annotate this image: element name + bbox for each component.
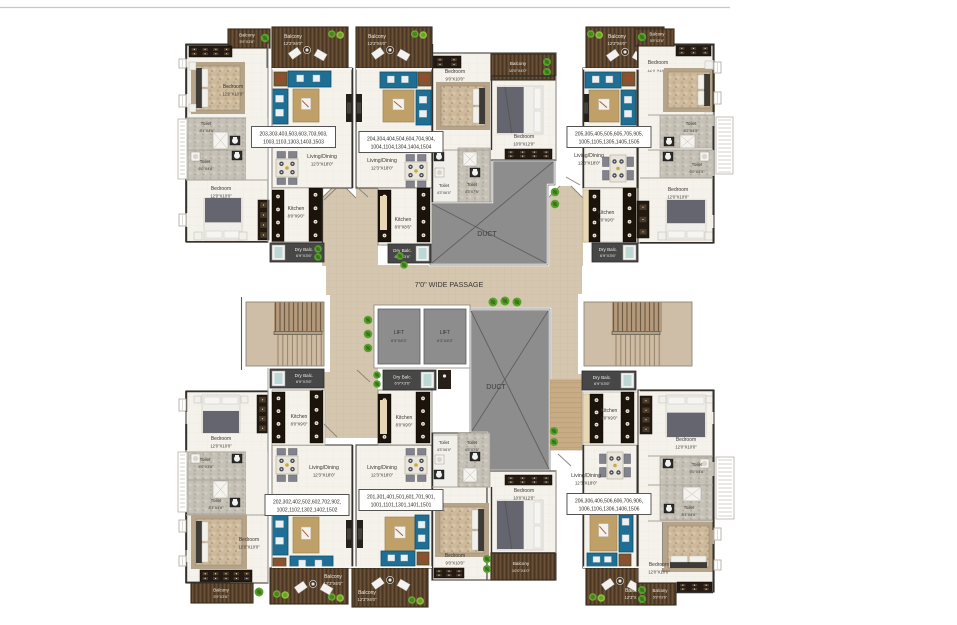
svg-text:Bedroom: Bedroom — [211, 186, 231, 192]
svg-text:Kitchen: Kitchen — [288, 206, 305, 212]
svg-text:Toilet: Toilet — [467, 440, 478, 445]
svg-text:4'3"X7'6": 4'3"X7'6" — [465, 190, 480, 194]
svg-text:10'0"X4'0": 10'0"X4'0" — [512, 568, 531, 573]
svg-text:Bedroom: Bedroom — [514, 134, 534, 140]
svg-text:Bedroom: Bedroom — [676, 437, 696, 443]
svg-text:Bedroom: Bedroom — [514, 488, 534, 494]
svg-text:6'3"X8'3": 6'3"X8'3" — [391, 338, 408, 343]
svg-text:Balcony: Balcony — [213, 588, 229, 593]
svg-text:9'0"X10'0": 9'0"X10'0" — [445, 561, 465, 566]
svg-text:4'3"X6'0": 4'3"X6'0" — [437, 191, 452, 195]
svg-text:Toilet: Toilet — [201, 121, 212, 126]
svg-text:Balcony: Balcony — [324, 574, 342, 580]
svg-text:205,305,405,505,605,705,905,: 205,305,405,505,605,705,905, — [575, 132, 643, 138]
svg-text:6'9"X3'6": 6'9"X3'6" — [296, 379, 313, 384]
svg-text:8'3"X4'6": 8'3"X4'6" — [681, 513, 697, 517]
svg-text:Bedroom: Bedroom — [445, 69, 465, 75]
svg-text:Kitchen: Kitchen — [598, 210, 615, 216]
svg-text:LIFT: LIFT — [440, 330, 450, 336]
svg-text:1004,1104,1304,1404,1504: 1004,1104,1304,1404,1504 — [371, 145, 432, 151]
svg-text:Toilet: Toilet — [200, 457, 211, 462]
svg-text:12'0"X10'0": 12'0"X10'0" — [222, 92, 244, 97]
svg-text:Dry Balc.: Dry Balc. — [393, 248, 412, 253]
svg-text:Toilet: Toilet — [211, 498, 222, 503]
svg-text:Toilet: Toilet — [692, 162, 703, 167]
svg-text:12'0"X10'0": 12'0"X10'0" — [210, 444, 232, 449]
svg-text:1001,1101,1301,1401,1501: 1001,1101,1301,1401,1501 — [371, 503, 432, 509]
svg-text:Bedroom: Bedroom — [668, 187, 688, 193]
svg-text:12'3"X6'0": 12'3"X6'0" — [367, 41, 387, 46]
svg-text:Living/Dining: Living/Dining — [574, 153, 604, 159]
svg-text:DUCT: DUCT — [477, 231, 497, 238]
svg-text:12'3"X18'0": 12'3"X18'0" — [575, 481, 598, 486]
svg-text:Living/Dining: Living/Dining — [309, 465, 339, 471]
svg-text:6'9"X3'6": 6'9"X3'6" — [594, 381, 611, 386]
svg-text:6'0"X4'5": 6'0"X4'5" — [689, 170, 705, 174]
svg-text:Living/Dining: Living/Dining — [367, 158, 397, 164]
svg-text:12'0"X10'0": 12'0"X10'0" — [667, 195, 689, 200]
svg-text:Balcony: Balcony — [358, 590, 376, 596]
svg-text:12'3"X18'0": 12'3"X18'0" — [311, 162, 334, 167]
svg-text:Living/Dining: Living/Dining — [571, 473, 601, 479]
svg-text:Bedroom: Bedroom — [239, 537, 259, 543]
svg-text:1003,1103,1303,1403,1503: 1003,1103,1303,1403,1503 — [263, 140, 324, 146]
svg-text:Balcony: Balcony — [284, 34, 302, 40]
svg-text:9'0"X10'0": 9'0"X10'0" — [445, 77, 465, 82]
svg-text:12'3"X6'0": 12'3"X6'0" — [283, 41, 303, 46]
svg-text:Balcony: Balcony — [368, 34, 386, 40]
svg-text:Balcony: Balcony — [608, 34, 626, 40]
svg-text:5'9"X3'6": 5'9"X3'6" — [650, 39, 665, 43]
svg-text:Bedroom: Bedroom — [445, 553, 465, 559]
svg-text:8'0"X9'0": 8'0"X9'0" — [601, 416, 618, 421]
svg-text:12'3"X18'0": 12'3"X18'0" — [371, 166, 394, 171]
svg-text:Kitchen: Kitchen — [395, 217, 412, 223]
svg-text:Toilet: Toilet — [439, 440, 450, 445]
svg-text:Balcony: Balcony — [650, 32, 666, 37]
svg-text:4'3"X6'0": 4'3"X6'0" — [437, 448, 452, 452]
svg-text:12'3"X18'0": 12'3"X18'0" — [371, 473, 394, 478]
svg-text:Bedroom: Bedroom — [648, 60, 668, 66]
svg-text:Toilet: Toilet — [200, 159, 211, 164]
svg-text:Balcony: Balcony — [510, 61, 527, 66]
svg-text:6'3"X8'3": 6'3"X8'3" — [437, 338, 454, 343]
svg-text:Dry Balc.: Dry Balc. — [295, 373, 314, 378]
svg-text:Toilet: Toilet — [439, 183, 450, 188]
svg-text:12'0"X10'0": 12'0"X10'0" — [648, 570, 670, 575]
svg-text:Living/Dining: Living/Dining — [367, 465, 397, 471]
svg-text:5'9"X3'6": 5'9"X3'6" — [213, 595, 229, 599]
svg-text:8'0"X9'0": 8'0"X9'0" — [396, 423, 413, 428]
svg-text:Dry Balc.: Dry Balc. — [393, 375, 412, 380]
svg-text:5'9"X3'6": 5'9"X3'6" — [239, 40, 255, 44]
svg-text:10'0"X12'0": 10'0"X12'0" — [513, 142, 535, 147]
svg-text:12'0"X10'0": 12'0"X10'0" — [675, 445, 697, 450]
svg-text:Dry Balc.: Dry Balc. — [599, 247, 618, 252]
svg-text:LIFT: LIFT — [394, 330, 404, 336]
svg-text:DUCT: DUCT — [486, 384, 506, 391]
svg-text:203,303,403,503,603,703,903,: 203,303,403,503,603,703,903, — [259, 132, 327, 138]
svg-text:Toilet: Toilet — [684, 505, 695, 510]
svg-text:8'0"X9'0": 8'0"X9'0" — [288, 214, 305, 219]
svg-text:8'0"X9'0": 8'0"X9'0" — [291, 422, 308, 427]
svg-text:6'9"X3'6": 6'9"X3'6" — [395, 381, 412, 386]
svg-text:Dry Balc.: Dry Balc. — [295, 247, 314, 252]
svg-text:Kitchen: Kitchen — [601, 408, 618, 414]
svg-text:12'3"X6'0": 12'3"X6'0" — [357, 597, 377, 602]
svg-text:10'0"X4'0": 10'0"X4'0" — [509, 68, 528, 73]
svg-text:Dry Balc.: Dry Balc. — [593, 375, 612, 380]
svg-text:6'0"X4'6": 6'0"X4'6" — [689, 470, 705, 474]
svg-text:12'3"X6'0": 12'3"X6'0" — [607, 41, 627, 46]
svg-text:8'0"X9'0": 8'0"X9'0" — [598, 218, 615, 223]
svg-text:8'2"X4'5": 8'2"X4'5" — [683, 129, 699, 133]
svg-text:6'0"X3'6": 6'0"X3'6" — [198, 465, 214, 469]
svg-text:6'9"X3'6": 6'9"X3'6" — [600, 253, 617, 258]
svg-text:Bedroom: Bedroom — [211, 436, 231, 442]
svg-text:12'0"X10'0": 12'0"X10'0" — [238, 545, 260, 550]
svg-text:Living/Dining: Living/Dining — [307, 154, 337, 160]
svg-text:6'9"X3'6": 6'9"X3'6" — [296, 253, 313, 258]
svg-text:6'0"X4'6": 6'0"X4'6" — [198, 167, 214, 171]
svg-text:12'3"X18'0": 12'3"X18'0" — [578, 161, 601, 166]
svg-text:1002,1102,1302,1402,1502: 1002,1102,1302,1402,1502 — [277, 508, 338, 514]
svg-text:12'3"X18'0": 12'3"X18'0" — [313, 473, 336, 478]
svg-text:Toilet: Toilet — [692, 462, 703, 467]
svg-text:Balcony: Balcony — [513, 561, 530, 566]
svg-text:8'0"X8'6": 8'0"X8'6" — [395, 225, 412, 230]
svg-text:1006,1106,1306,1406,1506: 1006,1106,1306,1406,1506 — [579, 507, 640, 513]
svg-text:Balcony: Balcony — [653, 588, 669, 593]
svg-text:202,302,402,502,602,702,902,: 202,302,402,502,602,702,902, — [273, 500, 341, 506]
svg-text:Bedroom: Bedroom — [223, 84, 243, 90]
svg-text:Kitchen: Kitchen — [291, 414, 308, 420]
svg-text:Toilet: Toilet — [467, 182, 478, 187]
svg-text:204,304,404,504,604,704,904,: 204,304,404,504,604,704,904, — [367, 137, 435, 143]
svg-text:201,301,401,501,601,701,901,: 201,301,401,501,601,701,901, — [367, 495, 435, 501]
svg-text:5'9"X3'6": 5'9"X3'6" — [653, 596, 668, 600]
svg-text:Toilet: Toilet — [686, 121, 697, 126]
svg-text:8'1"X4'6": 8'1"X4'6" — [199, 129, 215, 133]
svg-text:1005,1105,1305,1405,1505: 1005,1105,1305,1405,1505 — [579, 140, 640, 146]
svg-text:4'3"X7'6": 4'3"X7'6" — [465, 448, 480, 452]
svg-text:206,306,406,506,606,706,906,: 206,306,406,506,606,706,906, — [575, 499, 643, 505]
svg-text:Kitchen: Kitchen — [396, 415, 413, 421]
svg-text:7'0" WIDE PASSAGE: 7'0" WIDE PASSAGE — [415, 280, 484, 289]
svg-text:Balcony: Balcony — [239, 33, 255, 38]
svg-text:8'3"X4'6": 8'3"X4'6" — [208, 506, 224, 510]
